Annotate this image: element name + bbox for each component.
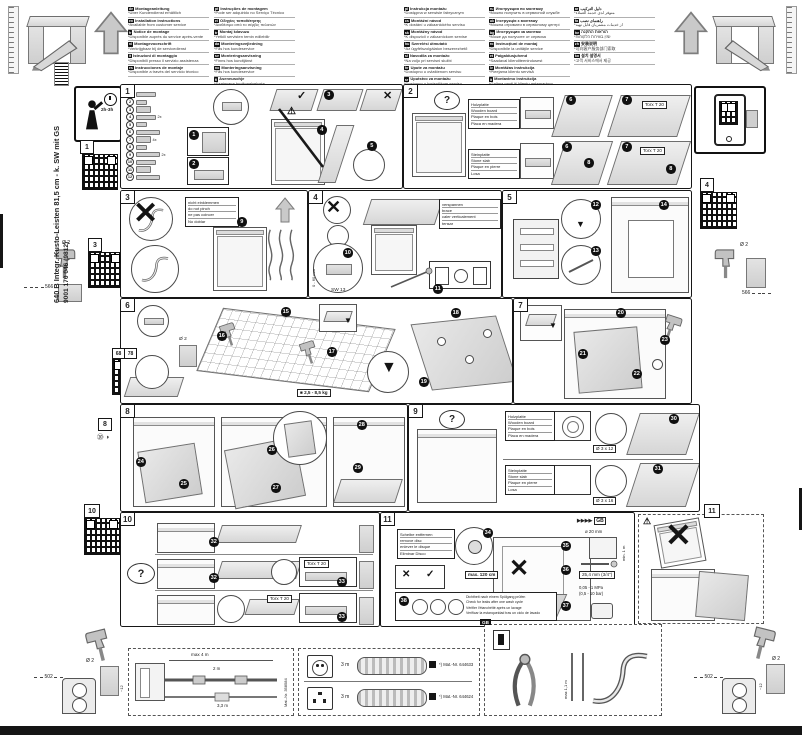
language-entry: elΟδηγίες τοποθέτησης*Διαθέσιμο από το σ… (214, 18, 295, 30)
pressure-label: 0,05 - 1 MPa (0,5 - 10 bar) (579, 585, 627, 599)
language-entry: nlMontagevoorschrift*Verkrijgbaar bij de… (128, 41, 209, 53)
dim-502-right: 502 (694, 674, 723, 680)
wood-note: Holzplatte Wooden board Plaque en bois P… (468, 99, 520, 129)
inset-bracket-bottom (520, 143, 554, 179)
part-icon (136, 130, 160, 135)
plinth-variant-1 (157, 523, 215, 553)
parts-list-row: 11 (126, 166, 186, 174)
callout-1: 1 (189, 130, 199, 140)
note-line: Losa (508, 487, 552, 492)
panel-1-number: 1 (120, 84, 135, 98)
disc (468, 540, 482, 554)
wood-note: Holzplatte Wooden board Plaque en bois P… (505, 411, 555, 441)
part-number: 12 (126, 173, 134, 181)
torx-label-top: Torx T 20 (642, 101, 667, 109)
edge-detail-circle (135, 355, 169, 389)
cord-coil-1 (357, 657, 427, 675)
sw13-label: SW 13 (331, 288, 345, 293)
kitchen-sketch-left (26, 12, 90, 76)
gb-chevrons: ▶▶▶▶ GB (577, 518, 606, 524)
min-length-label: min. 1 m (621, 535, 626, 561)
hose-clamp-icon (140, 254, 170, 284)
valve (326, 264, 352, 275)
door-protector (202, 132, 226, 153)
callout-6b: 6 (562, 142, 572, 152)
parts-list-row: 12 (126, 174, 186, 182)
hinge-bracket-left (62, 678, 96, 714)
plug-art (591, 603, 613, 619)
callout-34: 34 (483, 528, 493, 538)
language-entry: ptInstruções de montagem*Pode ser adquir… (214, 6, 295, 18)
language-note: *Διαθέσιμο από το σέρβις πελατών (214, 23, 295, 28)
mounting-plate (513, 219, 559, 279)
language-note: *متوفر لدى خدمة العملاء (574, 11, 655, 16)
smartphone-icon (714, 94, 746, 146)
callout-23: 23 (660, 335, 670, 345)
part-qty: 2x (158, 115, 162, 119)
mat-tag-icon (429, 693, 436, 700)
dim-566-value: 566 (742, 290, 750, 296)
callout-21: 21 (578, 349, 588, 359)
detail-circle-hinge (213, 89, 249, 125)
callout-6: 6 (566, 95, 576, 105)
hose-extension-box: max 4 m 2 m 3,3 m Mat.-Nr. 358584 (128, 648, 294, 716)
panel-6-number: 6 (120, 298, 135, 312)
dia2-bottom-left: Ø 2 (86, 658, 94, 664)
language-entry: etPaigaldusjuhend*Saadaval klienditeenin… (489, 53, 570, 65)
panel-4: 4 ✕ verspannen brace caler verticalement… (308, 190, 502, 298)
side-foot-1 (359, 525, 374, 553)
language-note: *고객 서비스에서 제공 (574, 59, 655, 64)
language-entry: roInstrucţiuni de montaj*Disponibile la … (489, 41, 570, 53)
language-note: *K dostání u zákaznického servisu (404, 23, 485, 28)
dim-566-right: 566 (742, 290, 771, 296)
language-entry: plInstrukcja montażu*Dostępna w serwisie… (404, 6, 485, 18)
range-label: 0 - 60 mm (311, 247, 316, 287)
callout-10: 10 (343, 248, 353, 258)
hose-diameter-label: ø 20 mm (585, 529, 602, 534)
callout-8: 8 (584, 158, 594, 168)
brace-note: verspannen brace caler verticalement ten… (439, 199, 501, 229)
language-entry: svMonteringsanvisning*Finns hos kundtjän… (214, 53, 295, 65)
wood-rings-icon (562, 416, 584, 438)
callout-12: 12 (591, 200, 601, 210)
part-icon (136, 115, 156, 120)
drill-depth-block (179, 345, 197, 367)
qr-code-10 (84, 518, 120, 555)
callout-15: 15 (281, 307, 291, 317)
cord-mat-2: *) Mat.-Nr. 644624 (439, 694, 473, 699)
callout-8b: 8 (666, 164, 676, 174)
language-entry: arدليل التركيب*متوفر لدى خدمة العملاء (574, 6, 655, 18)
handling-warning-strip: ⚠ ✕ (638, 514, 764, 624)
stone-note: Steinplatte Stone slab Plaque en pierre … (468, 149, 520, 179)
screw-point (483, 329, 492, 338)
gb-flag-label: GB (594, 517, 607, 525)
pliers-icon (505, 651, 549, 707)
callout-18: 18 (451, 308, 461, 318)
check-icon: ✓ (297, 91, 306, 102)
language-entry: frNotice de montage*Disponible auprès du… (128, 30, 209, 42)
depth-label-left: ~12 (119, 668, 124, 692)
parts-list-row: 4 2x (126, 114, 186, 122)
language-column-2: ptInstruções de montagem*Pode ser adquir… (214, 6, 295, 88)
qr-code-4 (700, 192, 737, 229)
panel-10-number: 10 (120, 512, 135, 526)
callout-33b: 33 (337, 612, 347, 622)
question-bubble: ? (439, 410, 465, 429)
hose-dim-2: 3,3 m (217, 703, 228, 708)
cord-length-2: 3 m (341, 694, 349, 700)
parts-list-row: 7 4x (126, 136, 186, 144)
qr-step-label-3: 3 (88, 238, 102, 252)
qr-step-label-11: 11 (704, 504, 720, 518)
part-icon (136, 100, 147, 105)
language-entry: ko설치 설명서*고객 서비스에서 제공 (574, 53, 655, 65)
callout-29: 29 (353, 463, 363, 473)
callout-4: 4 (317, 125, 327, 135)
model-text: 640 B Integr. Kusto-Leisten 81,5 cm - k.… (52, 88, 61, 303)
part-icon (136, 122, 147, 127)
pinch-note: nicht einklemmen do not pinch ne pas coi… (185, 197, 239, 227)
bracket (525, 110, 551, 119)
dim-line (169, 660, 273, 661)
language-note: *Na voljo pri servisni službi (404, 59, 485, 64)
part-qty: 4x (153, 138, 157, 142)
detail-circle-hose (131, 245, 179, 293)
depth-block-left (100, 666, 119, 696)
print-mark (0, 214, 3, 268)
language-note: *Disponibili presso il servizio assisten… (128, 59, 209, 64)
part-icon (136, 152, 160, 157)
pencil-icon (716, 32, 772, 72)
picto-drip (448, 599, 464, 615)
callout-22: 22 (632, 369, 642, 379)
language-note: *Disponible a través del servicio técnic… (128, 70, 209, 75)
qr-code-3 (88, 252, 122, 288)
qr-step-label-10: 10 (84, 504, 100, 518)
panel-9-number: 9 (408, 404, 423, 418)
depth-label-right: ~12 (758, 666, 763, 690)
press-detail-circle: ▼ (367, 351, 409, 393)
leak-line: Verificar la estanqueidad tras un ciclo … (466, 611, 554, 616)
arrow-down-icon: ▼ (576, 220, 585, 229)
part-icon (136, 166, 151, 173)
leak-check-box: 38 Dichtheit nach einem Spülgang prüfen … (395, 592, 557, 621)
language-entry: noMonteringsanvisning*Fås hos kundeservi… (214, 65, 295, 77)
language-note: *Pode ser adquirido no Serviço Técnico (214, 11, 295, 16)
plinth-rail-1 (216, 525, 302, 543)
dim-502-value: 502 (45, 674, 53, 680)
stone-icon-box (553, 465, 591, 495)
picto-rinse (412, 599, 428, 615)
kitchen-run (417, 429, 497, 503)
cord-coil-2 (357, 689, 427, 707)
language-entry: daMonteringsvejledning*Fås hos kundeserv… (214, 41, 295, 53)
hose-line-1 (165, 673, 277, 687)
language-note: *Можна отримати в сервісному центрі (489, 23, 570, 28)
detail-circle-2 (271, 559, 297, 585)
curved-hose-icon (589, 647, 651, 709)
panel-11-number: 11 (380, 512, 395, 526)
parts-list-row: 9 2x (126, 151, 186, 159)
arrow-up-icon (94, 8, 128, 58)
callout-33a: 33 (337, 577, 347, 587)
panel-3: 3 ✕ nicht einklemmen do not pinch ne pas… (120, 190, 308, 298)
drill-icon-right (712, 246, 738, 282)
plate-slot (520, 228, 554, 235)
pressure-line: (0,5 - 10 bar) (579, 591, 627, 597)
open-door (333, 479, 403, 503)
language-note: *Dostępna w serwisie fabrycznym (404, 11, 485, 16)
row-divider (155, 554, 373, 555)
picto-inspect (430, 599, 446, 615)
cross-icon: ✕ (133, 199, 158, 229)
weight-value: 2,5 - 8,5 kg (304, 390, 328, 395)
arrow-down-icon: ▼ (381, 360, 397, 376)
pencil-icon (30, 32, 86, 72)
note-line: Placa en madera (471, 121, 517, 126)
language-entry: itIstruzioni di montaggio*Disponibili pr… (128, 53, 209, 65)
language-entry: deMontageanleitung*Über Kundendienst erh… (128, 6, 209, 18)
cable-line (271, 105, 331, 175)
sink-pipe (140, 668, 150, 698)
language-entry: faراهنمای نصب*از خدمات مشتریان قابل تهیه (574, 18, 655, 30)
picto-foot (473, 267, 487, 285)
callout-11: 11 (433, 284, 443, 294)
hose-mat-number: Mat.-Nr. 358584 (283, 657, 288, 707)
screw-detail-bottom (595, 465, 627, 497)
panel-10: 10 ? 32 32 Torx T 20 33 Torx T 20 33 (120, 512, 380, 627)
language-entry: huSzerelési útmutató*Az ügyfélszolgálato… (404, 41, 485, 53)
pad-inset: ▼ (319, 304, 357, 332)
socket-eu-icon (307, 655, 333, 678)
language-entry: ruИнструкция по монтажу*Можно получить в… (489, 6, 570, 18)
furniture-door (695, 571, 749, 621)
panel-11: 11 Scheibe entfernen remove disc enlever… (380, 512, 635, 627)
callout-20: 20 (616, 308, 626, 318)
language-note: *Може да получите от сервиза (489, 35, 570, 40)
bracket-hole (72, 683, 87, 698)
clamp (144, 318, 164, 325)
callout-25: 25 (179, 479, 189, 489)
phone-home-button (726, 136, 732, 142)
plinth-variant-2 (157, 559, 215, 589)
screw-line (389, 265, 433, 291)
callout-30: 30 (669, 414, 679, 424)
plate-slot (520, 244, 554, 251)
screw-point (465, 355, 474, 364)
stone-note: Steinplatte Stone slab Plaque en pierre … (505, 465, 555, 495)
arrow-up-icon-right (674, 8, 708, 58)
language-note: *K dispozícii v zákazníckom servise (404, 35, 485, 40)
language-note: *Available from customer service (128, 23, 209, 28)
cross-icon: ✕ (665, 519, 692, 551)
language-entry: csMontážní návod*K dostání u zákaznickéh… (404, 18, 485, 30)
disposal-picto (493, 630, 510, 650)
panel-5: 5 ▼ 12 13 14 (502, 190, 692, 298)
callout-7b: 7 (622, 142, 632, 152)
panel-8: 8 24 25 26 27 28 29 (120, 404, 408, 512)
push-arrow-icon (275, 197, 295, 223)
callout-7: 7 (622, 95, 632, 105)
language-column-3: plInstrukcja montażu*Dostępna w serwisie… (404, 6, 485, 88)
installer-badge: 2h-3h (74, 86, 122, 142)
qr-code-1 (82, 154, 118, 190)
socket-uk-icon (307, 687, 333, 710)
language-entry: hrUpute za montažu*Dostupno u ovlaštenom… (404, 65, 485, 77)
part-icon (136, 106, 151, 113)
parts-list: 1 2 3 4 (126, 91, 186, 185)
installer-icon (80, 96, 104, 134)
language-note: *از خدمات مشتریان قابل تهیه (574, 23, 655, 28)
cross-icon: ✕ (402, 570, 410, 580)
cabinet (611, 197, 689, 293)
callout-2: 2 (189, 159, 199, 169)
panel-3-number: 3 (120, 190, 135, 204)
callout-32a: 32 (209, 537, 219, 547)
part-icon (136, 136, 151, 143)
drill-dia-label: Ø 2 (62, 240, 70, 246)
sink-unit (135, 663, 165, 701)
worktop-bottom (626, 463, 700, 507)
clock-icon (104, 93, 117, 106)
leak-text: Dichtheit nach einem Spülgang prüfen Che… (466, 595, 554, 618)
panel-1: 1 1 2 3 (120, 84, 403, 189)
phone-service-box (694, 86, 766, 154)
language-note: *Yetkili servisten temin edilebilir (214, 35, 295, 40)
valve-detail-circle (313, 243, 363, 293)
bottom-bar (0, 726, 802, 735)
torx-label: Torx T 20 (304, 560, 329, 568)
worktop-a (551, 95, 613, 137)
hinge-block-right (746, 258, 766, 288)
tool-inset-3 (299, 593, 357, 623)
door-weight-label: ■ 2,5 - 8,5 kg (297, 389, 331, 397)
question-bubble: ? (127, 563, 155, 584)
clamp-detail-circle (137, 305, 169, 337)
note-line: Placa en madera (508, 433, 552, 438)
dim-566-value: 566 (45, 284, 53, 290)
panel-8-number: 8 (120, 404, 135, 418)
part-icon (136, 160, 156, 165)
screwdriver-icon (567, 254, 595, 276)
language-note: *Über Kundendienst erhältlich (128, 11, 209, 16)
dim-502-left: 502 (34, 674, 63, 680)
hose-routing-pictos: ✕ ✓ (395, 565, 445, 589)
plinth-variant-3 (157, 595, 215, 625)
furniture-door (573, 326, 642, 393)
qr-step-label-4: 4 (700, 178, 714, 192)
row-divider (155, 590, 373, 591)
parts-list-row: 5 (126, 121, 186, 129)
door-stage-1 (137, 443, 202, 503)
callout-26: 26 (267, 445, 277, 455)
screw-row (579, 559, 619, 569)
thread-label: 25,4 mm (3/4") (579, 571, 615, 579)
ruler-icon (8, 6, 19, 74)
warning-icon: ⚠ (643, 517, 651, 526)
step-8-icons: ⑳ ◑ (97, 431, 109, 441)
qr-step-label-7: 78 (124, 348, 137, 359)
callout-16: 16 (217, 331, 227, 341)
picto-level (454, 269, 468, 283)
screw-point (652, 359, 663, 370)
tool-inset-2: Torx T 20 (299, 557, 357, 587)
inset-bracket-top (520, 97, 554, 129)
callout-36: 36 (561, 565, 571, 575)
clock-hand (109, 96, 110, 100)
torx-label-bottom: Torx T 20 (640, 147, 665, 155)
side-foot-2 (359, 561, 374, 589)
base-strip (194, 170, 224, 180)
cord-divider (304, 681, 472, 682)
part-icon (136, 92, 156, 97)
screw-point (437, 337, 446, 346)
hose-dim-1: 2 m (213, 666, 220, 671)
part-qty: 2x (162, 153, 166, 157)
callout-35: 35 (561, 541, 571, 551)
hinge-bracket-right (722, 678, 756, 714)
hose-max-label: max 4 m (191, 652, 209, 657)
language-note: *Fås hos kundeservice (214, 47, 295, 52)
wood-ring (567, 421, 579, 433)
language-note: *Az ügyfélszolgálaton beszerezhető (404, 47, 485, 52)
plate-slot (520, 260, 554, 267)
language-entry: enInstallation instructions*Available fr… (128, 18, 209, 30)
cross-icon: ✕ (383, 91, 392, 102)
hose-piece (571, 653, 584, 701)
callout-38: 38 (399, 596, 409, 606)
part-icon (136, 145, 147, 150)
weight-icon: ■ (300, 390, 303, 395)
dishwasher (213, 227, 267, 291)
language-note: *Pieejama klientu servisā (489, 70, 570, 75)
corner-detail-circle (273, 411, 327, 465)
order-number-text: 9001 170 046 (9812) (63, 88, 70, 303)
callout-3: 3 (324, 90, 334, 100)
language-note: *Verkrijgbaar bij de servicedienst (128, 47, 209, 52)
language-entry: esInstrucciones de montaje*Disponible a … (128, 65, 209, 77)
cord-length-1: 3 m (341, 662, 349, 668)
hinge-block-left (58, 284, 82, 302)
tap-art (589, 537, 617, 559)
dim-502-value: 502 (705, 674, 713, 680)
gb-tag: GB (480, 619, 491, 625)
depth-block-right (766, 664, 785, 694)
detail-circle-3 (217, 595, 245, 623)
bracket-hole (732, 698, 747, 713)
callout-37: 37 (561, 601, 571, 611)
language-note: *Можно получить в сервисной службе (489, 11, 570, 16)
bracket-hole (72, 698, 87, 713)
language-note: *זמין בשירות הלקוחות (574, 35, 655, 40)
screw-detail-top (595, 413, 627, 445)
dia2-bottom-right: Ø 2 (772, 656, 780, 662)
panel-2-number: 2 (403, 84, 418, 98)
panel-5-number: 5 (502, 190, 517, 204)
side-foot-3 (359, 597, 374, 625)
panel-9: 9 ? Holzplatte Wooden board Plaque en bo… (408, 404, 700, 512)
worktop (363, 199, 443, 225)
note-line: tensar (442, 221, 498, 226)
callout-13: 13 (591, 246, 601, 256)
language-note: *Fås hos kundeservice (214, 70, 295, 75)
worktop-c (551, 141, 613, 185)
panel-6: 6 Ø 2 ▼ 15 16 17 ▼ ■ 2,5 - 8,5 kg 18 19 (120, 298, 513, 404)
note-line: No doblar (188, 219, 236, 224)
panel-7: 7 ▼ 20 21 22 23 (513, 298, 692, 404)
